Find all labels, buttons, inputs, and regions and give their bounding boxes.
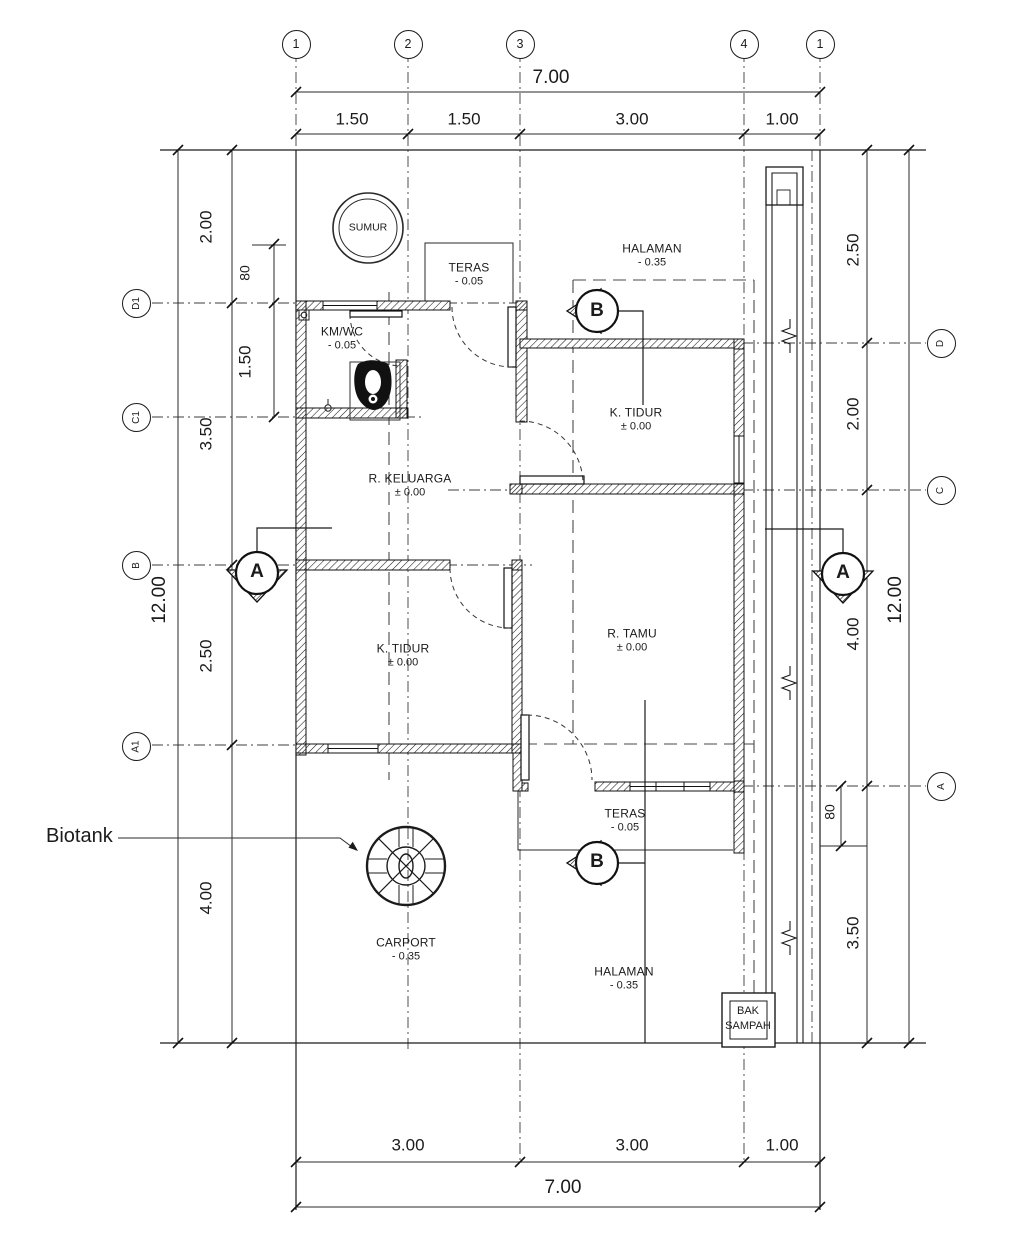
wall xyxy=(510,484,744,494)
section-letter-b-top: B xyxy=(590,300,604,322)
room-label-halaman-top: HALAMAN- 0.35 xyxy=(622,242,681,271)
window xyxy=(328,744,378,753)
teras-outlines xyxy=(425,243,733,850)
room-label-rtamu: R. TAMU± 0.00 xyxy=(607,627,657,656)
dim-right-overall: 12.00 xyxy=(884,576,908,624)
wall xyxy=(734,339,744,436)
grid-bubble-1r: 1 xyxy=(806,30,835,59)
room-label-kmwc: KM/WC- 0.05 xyxy=(321,325,363,354)
door-leaf xyxy=(350,311,402,317)
grid-bubble-a: A xyxy=(927,772,956,801)
grid-bubble-c: C xyxy=(927,476,956,505)
room-label-carport: CARPORT- 0.35 xyxy=(376,936,436,965)
label-sumur: SUMUR xyxy=(349,221,388,234)
column xyxy=(296,301,306,310)
dim-left-seg-3: 2.50 xyxy=(195,639,216,672)
dim-right-seg-1: 2.50 xyxy=(842,233,863,266)
grid-lines xyxy=(152,30,926,1162)
window xyxy=(630,782,710,791)
dimension-lines xyxy=(178,92,909,1207)
grid-bubble-1: 1 xyxy=(282,30,311,59)
dim-bottom-seg-2: 3.00 xyxy=(615,1134,648,1155)
door-leaf xyxy=(520,476,584,484)
grid-bubble-d: D xyxy=(927,329,956,358)
dim-left-seg-4: 4.00 xyxy=(195,881,216,914)
dim-bottom-seg-1: 3.00 xyxy=(391,1134,424,1155)
floor-plan-linework xyxy=(0,0,1024,1248)
column xyxy=(296,408,306,418)
column xyxy=(296,744,306,753)
room-label-teras-bottom: TERAS- 0.05 xyxy=(604,807,645,836)
grid-bubble-3: 3 xyxy=(506,30,535,59)
break-symbol xyxy=(782,666,796,700)
room-label-teras-top: TERAS- 0.05 xyxy=(448,261,489,290)
grid-bubble-4: 4 xyxy=(730,30,759,59)
column xyxy=(510,484,522,494)
section-leader xyxy=(257,528,332,552)
grid-bubble-d1: D1 xyxy=(122,289,151,318)
wall xyxy=(296,560,450,570)
site-boundary xyxy=(160,150,926,1210)
door-swing-arc xyxy=(527,715,592,780)
door-leaf xyxy=(504,568,512,628)
window xyxy=(734,436,744,483)
dim-right-seg-2: 2.00 xyxy=(842,397,863,430)
dim-top-seg-2: 1.50 xyxy=(447,108,480,129)
fence xyxy=(766,167,803,1043)
dim-top-seg-1: 1.50 xyxy=(335,108,368,129)
column xyxy=(734,781,744,792)
room-label-ktidur-1: K. TIDUR± 0.00 xyxy=(610,406,663,435)
wall xyxy=(595,782,630,791)
room-label-halaman-bottom: HALAMAN- 0.35 xyxy=(594,965,653,994)
biotank-leader xyxy=(118,838,358,851)
door-leaf xyxy=(508,307,516,367)
section-letter-b-bottom: B xyxy=(590,851,604,873)
grid-bubble-a1: A1 xyxy=(122,732,151,761)
dim-top-seg-4: 1.00 xyxy=(765,108,798,129)
dim-right-sub-80: 80 xyxy=(821,804,839,820)
dim-right-seg-4: 3.50 xyxy=(842,916,863,949)
door-swing-arc xyxy=(452,307,512,367)
section-leader xyxy=(765,529,843,553)
column xyxy=(296,560,306,570)
dim-bottom-overall: 7.00 xyxy=(545,1176,582,1200)
dim-left-sub-80: 80 xyxy=(236,265,254,281)
label-bak-sampah: BAK SAMPAH xyxy=(725,1004,771,1034)
door-leaf xyxy=(521,715,529,780)
dim-left-seg-2: 3.50 xyxy=(195,417,216,450)
wall xyxy=(520,339,744,348)
wall xyxy=(377,301,450,310)
room-label-ktidur-2: K. TIDUR± 0.00 xyxy=(377,642,430,671)
fixtures xyxy=(118,193,775,1047)
break-symbol xyxy=(782,921,796,955)
wall xyxy=(734,483,744,853)
column xyxy=(512,560,522,570)
dim-top-overall: 7.00 xyxy=(533,66,570,90)
grid-bubble-c1: C1 xyxy=(122,403,151,432)
label-biotank: Biotank xyxy=(46,825,113,848)
dim-left-sub-150: 1.50 xyxy=(234,345,255,378)
section-letter-a-left: A xyxy=(250,561,264,583)
wall xyxy=(378,744,520,753)
dim-top-seg-3: 3.00 xyxy=(615,108,648,129)
section-markers xyxy=(227,289,873,1043)
dim-left-overall: 12.00 xyxy=(148,576,172,624)
roof-overhang-lines xyxy=(389,280,754,1020)
dim-left-seg-1: 2.00 xyxy=(195,210,216,243)
door-swing-arc xyxy=(450,568,510,628)
column xyxy=(396,408,407,418)
grid-bubble-2: 2 xyxy=(394,30,423,59)
column xyxy=(734,484,744,494)
window xyxy=(323,301,377,310)
room-label-rkeluarga: R. KELUARGA± 0.00 xyxy=(369,472,452,501)
column xyxy=(516,301,527,310)
dim-right-seg-3: 4.00 xyxy=(842,617,863,650)
dim-bottom-seg-3: 1.00 xyxy=(765,1134,798,1155)
break-symbol xyxy=(782,319,796,353)
biotank-icon xyxy=(367,827,445,905)
section-leader xyxy=(618,311,643,405)
column xyxy=(734,339,744,349)
wall xyxy=(296,408,408,418)
grid-bubble-b: B xyxy=(122,551,151,580)
section-letter-a-right: A xyxy=(836,562,850,584)
floor-plan-canvas: 1 2 3 4 1 D1 C1 B A1 D C A 7.00 1.50 1.5… xyxy=(0,0,1024,1248)
wall xyxy=(516,301,527,422)
